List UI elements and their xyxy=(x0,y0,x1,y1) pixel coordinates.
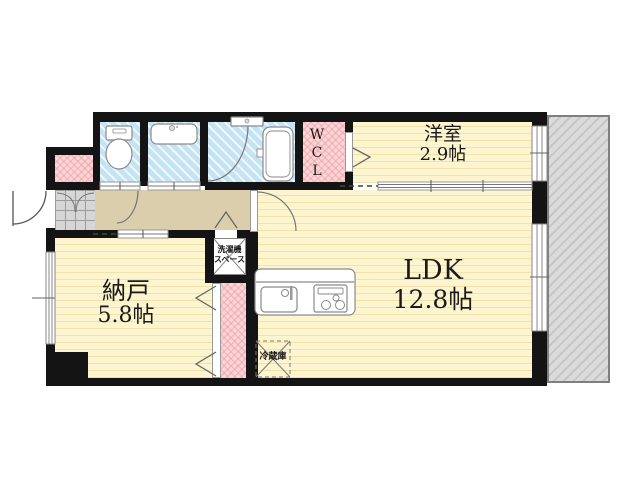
wcl-letter: W xyxy=(305,126,329,144)
room-size: 5.8帖 xyxy=(76,304,176,328)
western-room-label: 洋室 2.9帖 xyxy=(393,124,493,165)
storage-closet xyxy=(221,283,246,378)
wcl-label: W C L xyxy=(305,126,329,180)
refrigerator-label: 冷蔵庫 xyxy=(256,353,290,363)
washroom xyxy=(148,122,200,186)
bathroom xyxy=(208,122,295,186)
entrance-genkan xyxy=(55,190,96,230)
wall-segment xyxy=(46,378,547,386)
toilet-room xyxy=(100,122,140,186)
storage-room-window xyxy=(32,252,55,344)
laundry-label-line: スペース xyxy=(213,255,246,265)
wall-segment xyxy=(140,122,148,186)
wall-segment xyxy=(532,181,547,224)
wall-segment xyxy=(46,182,99,190)
wall-segment xyxy=(205,275,246,283)
wall-segment xyxy=(237,230,246,238)
room-size: 12.8帖 xyxy=(358,286,508,314)
laundry-label-line: 洗濯機 xyxy=(213,245,246,255)
wall-segment xyxy=(250,182,345,190)
room-name: 納戸 xyxy=(76,278,176,304)
wall-segment xyxy=(46,352,88,378)
room-name: LDK xyxy=(358,256,508,286)
laundry-space-label: 洗濯機 スペース xyxy=(213,245,246,265)
room-size: 2.9帖 xyxy=(393,145,493,165)
wall-segment xyxy=(532,112,547,126)
wall-segment xyxy=(46,147,99,155)
storage-room-label: 納戸 5.8帖 xyxy=(76,278,176,329)
wall-segment xyxy=(46,230,215,238)
ldk-door-panel xyxy=(250,190,258,232)
ldk-label: LDK 12.8帖 xyxy=(358,256,508,313)
wcl-letter: L xyxy=(305,162,329,180)
wall-segment xyxy=(93,112,100,190)
wall-segment xyxy=(200,122,208,186)
wcl-door-panel xyxy=(345,132,353,172)
closet-door-panel xyxy=(212,283,221,378)
wall-segment xyxy=(93,112,547,122)
room-name: 洋室 xyxy=(393,124,493,145)
floorplan-canvas: 洋室 2.9帖 LDK 12.8帖 納戸 5.8帖 W C L 洗濯機 スペース… xyxy=(0,0,640,480)
wcl-letter: C xyxy=(305,144,329,162)
wall-segment xyxy=(295,122,303,186)
wall-segment xyxy=(345,122,353,132)
balcony-hatched-area xyxy=(547,115,610,383)
hallway xyxy=(95,190,250,230)
entrance-door-arc xyxy=(13,191,46,226)
shoe-closet xyxy=(55,155,93,182)
